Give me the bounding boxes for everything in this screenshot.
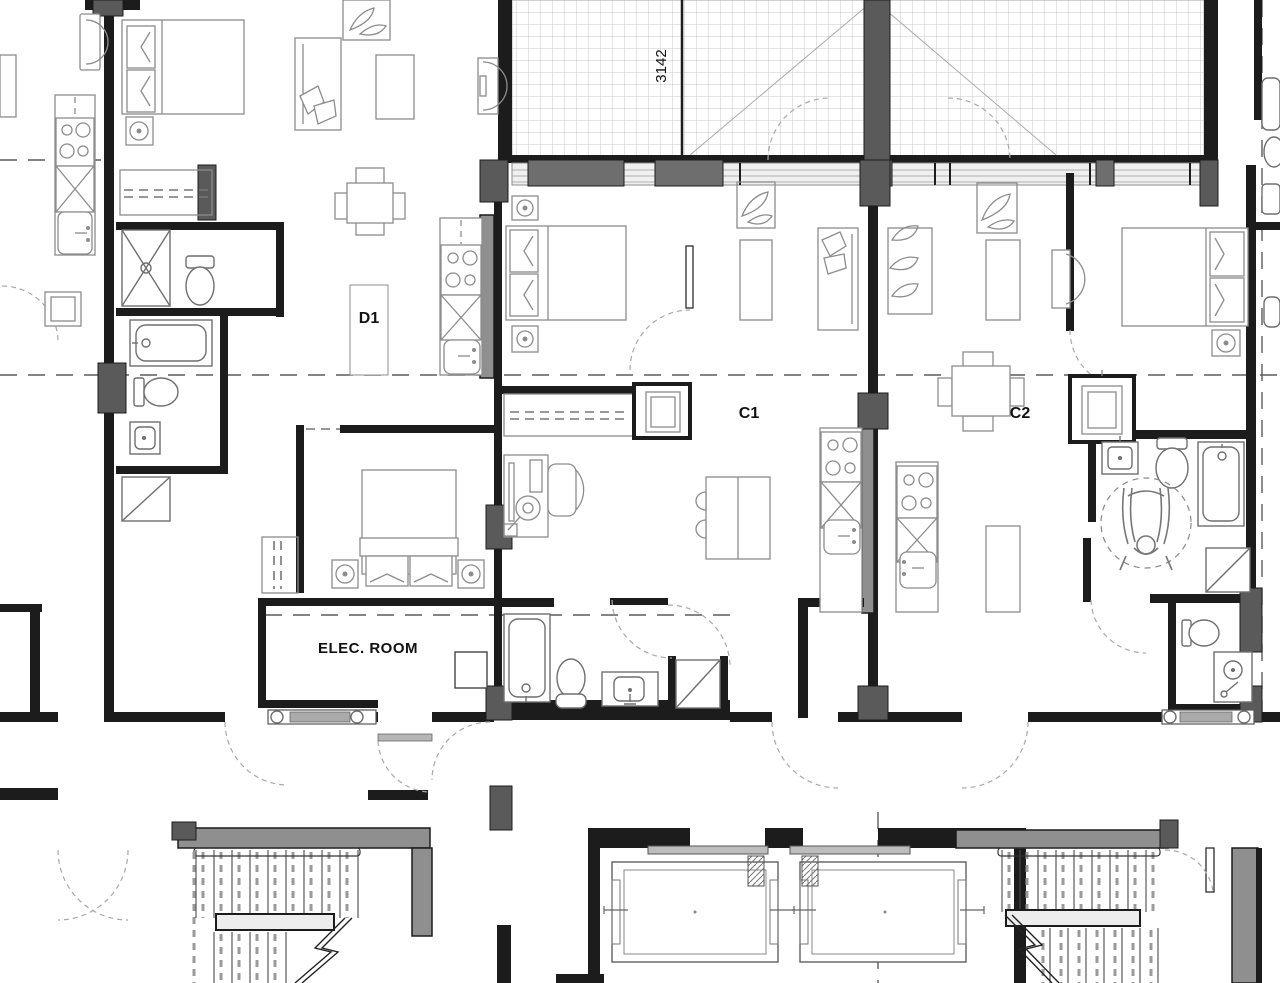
- door-leaf: [1206, 848, 1214, 892]
- console-c1: [740, 240, 772, 320]
- stair-door-swing: [58, 850, 128, 920]
- elevator-door-sill: [790, 846, 910, 854]
- electrical-panel: [455, 652, 487, 688]
- bed-top-left: [122, 20, 244, 114]
- stair-door-swing: [58, 850, 128, 920]
- door-leaf: [378, 734, 432, 741]
- bathtub-c1: [504, 614, 550, 702]
- elevator-door-mechanism: [802, 856, 818, 886]
- toilet-c1: [556, 659, 586, 708]
- kitchen-sink: [824, 520, 860, 554]
- toilet-left-mid: [134, 378, 178, 406]
- bedroom-door-swing: [630, 310, 690, 370]
- entry-door-swing: [225, 722, 288, 785]
- kitchen-island-c1: [696, 477, 770, 559]
- stool: [696, 492, 706, 510]
- kitchen-left: [55, 95, 95, 255]
- closet-c1: [504, 394, 634, 436]
- toilet-c2: [1156, 438, 1188, 488]
- nightstand-lamp: [512, 196, 538, 220]
- elevator-core: [588, 828, 1026, 983]
- kitchen-d1: [440, 218, 482, 375]
- unit-label-box: [350, 285, 388, 375]
- stair-landing: [216, 914, 334, 930]
- tv-console-c2: [1052, 250, 1085, 308]
- plant-c2-tall: [888, 226, 932, 314]
- plant-c1: [737, 182, 775, 228]
- toilet-left-top: [186, 256, 214, 305]
- elevator-door-sill: [648, 846, 768, 854]
- stair-core-right: [956, 820, 1262, 983]
- sink-c2: [1102, 436, 1138, 474]
- fixture-fragment: [0, 55, 16, 117]
- desk-c1: [504, 455, 584, 537]
- dining-table-left: [335, 168, 405, 235]
- entry-door-swing: [432, 722, 490, 780]
- nightstand-lamp: [512, 326, 538, 352]
- stool: [696, 520, 706, 538]
- desk-chair: [548, 464, 576, 516]
- sliding-door-panel: [528, 160, 624, 186]
- door-leaf: [686, 246, 693, 308]
- wall-cabinet-left: [45, 292, 81, 326]
- elevator-cab-1: [604, 856, 794, 962]
- stair-landing: [1006, 910, 1140, 926]
- bed-d1: [332, 470, 484, 588]
- vanity-c1: [602, 672, 658, 706]
- unit-label-c1: C1: [739, 405, 760, 422]
- washer-dryer-c1: [634, 384, 690, 438]
- entry-door-swing: [772, 722, 838, 788]
- elevator-cab-2: [792, 856, 984, 962]
- kitchen-c1: [820, 428, 862, 612]
- sofa-c1: [818, 228, 858, 330]
- shower-c1: [676, 660, 720, 708]
- nightstand-lamp: [126, 117, 153, 145]
- wheelchair-icon: [1120, 488, 1172, 570]
- balcony-deck: [498, 0, 1218, 163]
- kitchen-island-c2: [986, 526, 1020, 612]
- sofa-left: [295, 38, 341, 130]
- shower-left-top: [122, 230, 170, 306]
- bathtub-left: [130, 320, 212, 366]
- balcony-tile-hatch: [512, 0, 1204, 158]
- sliding-door-panel: [655, 160, 723, 186]
- entry-door-swing: [962, 722, 1028, 788]
- bath-door-swing: [612, 600, 672, 658]
- bed-c2: [1122, 228, 1248, 326]
- bathtub-c2: [1198, 442, 1244, 526]
- wheelchair-turning-circle: [1101, 478, 1191, 570]
- sink-left: [130, 422, 160, 454]
- unit-label-c2: C2: [1010, 405, 1031, 422]
- nightstand-lamp: [1212, 330, 1240, 356]
- kitchen-range: [897, 466, 937, 518]
- shower-left-low: [122, 477, 170, 521]
- closet-d1: [262, 537, 298, 593]
- stair-core-left: [172, 822, 432, 983]
- toilet-c2-lower: [1182, 620, 1219, 646]
- plant-top-left: [343, 0, 390, 40]
- window-band: [512, 160, 1204, 186]
- elec-door-swing: [378, 741, 428, 792]
- baseboard-heater-right: [1162, 710, 1254, 724]
- room-label-elec: ELEC. ROOM: [318, 640, 418, 657]
- washer-dryer-c2: [1070, 370, 1134, 442]
- media-console: [80, 14, 108, 70]
- kitchen-sink: [444, 340, 480, 374]
- stair-flight-lower: [1050, 928, 1158, 983]
- console-c2: [986, 240, 1020, 320]
- dimension-text: 3142: [653, 49, 670, 82]
- baseboard-heater-left: [268, 710, 376, 724]
- unit-label-d1: D1: [359, 310, 380, 327]
- kitchen-c2: [896, 462, 938, 612]
- floor-plan-canvas: D1 C1 C2 ELEC. ROOM 3142: [0, 0, 1280, 983]
- coffee-table: [376, 55, 414, 119]
- shower-c2: [1206, 548, 1250, 592]
- kitchen-sink: [900, 552, 936, 588]
- elevator-door-mechanism: [748, 856, 764, 886]
- bed-c1: [506, 226, 626, 320]
- vanity-c2-lower: [1214, 652, 1252, 702]
- plant-c2: [977, 183, 1017, 233]
